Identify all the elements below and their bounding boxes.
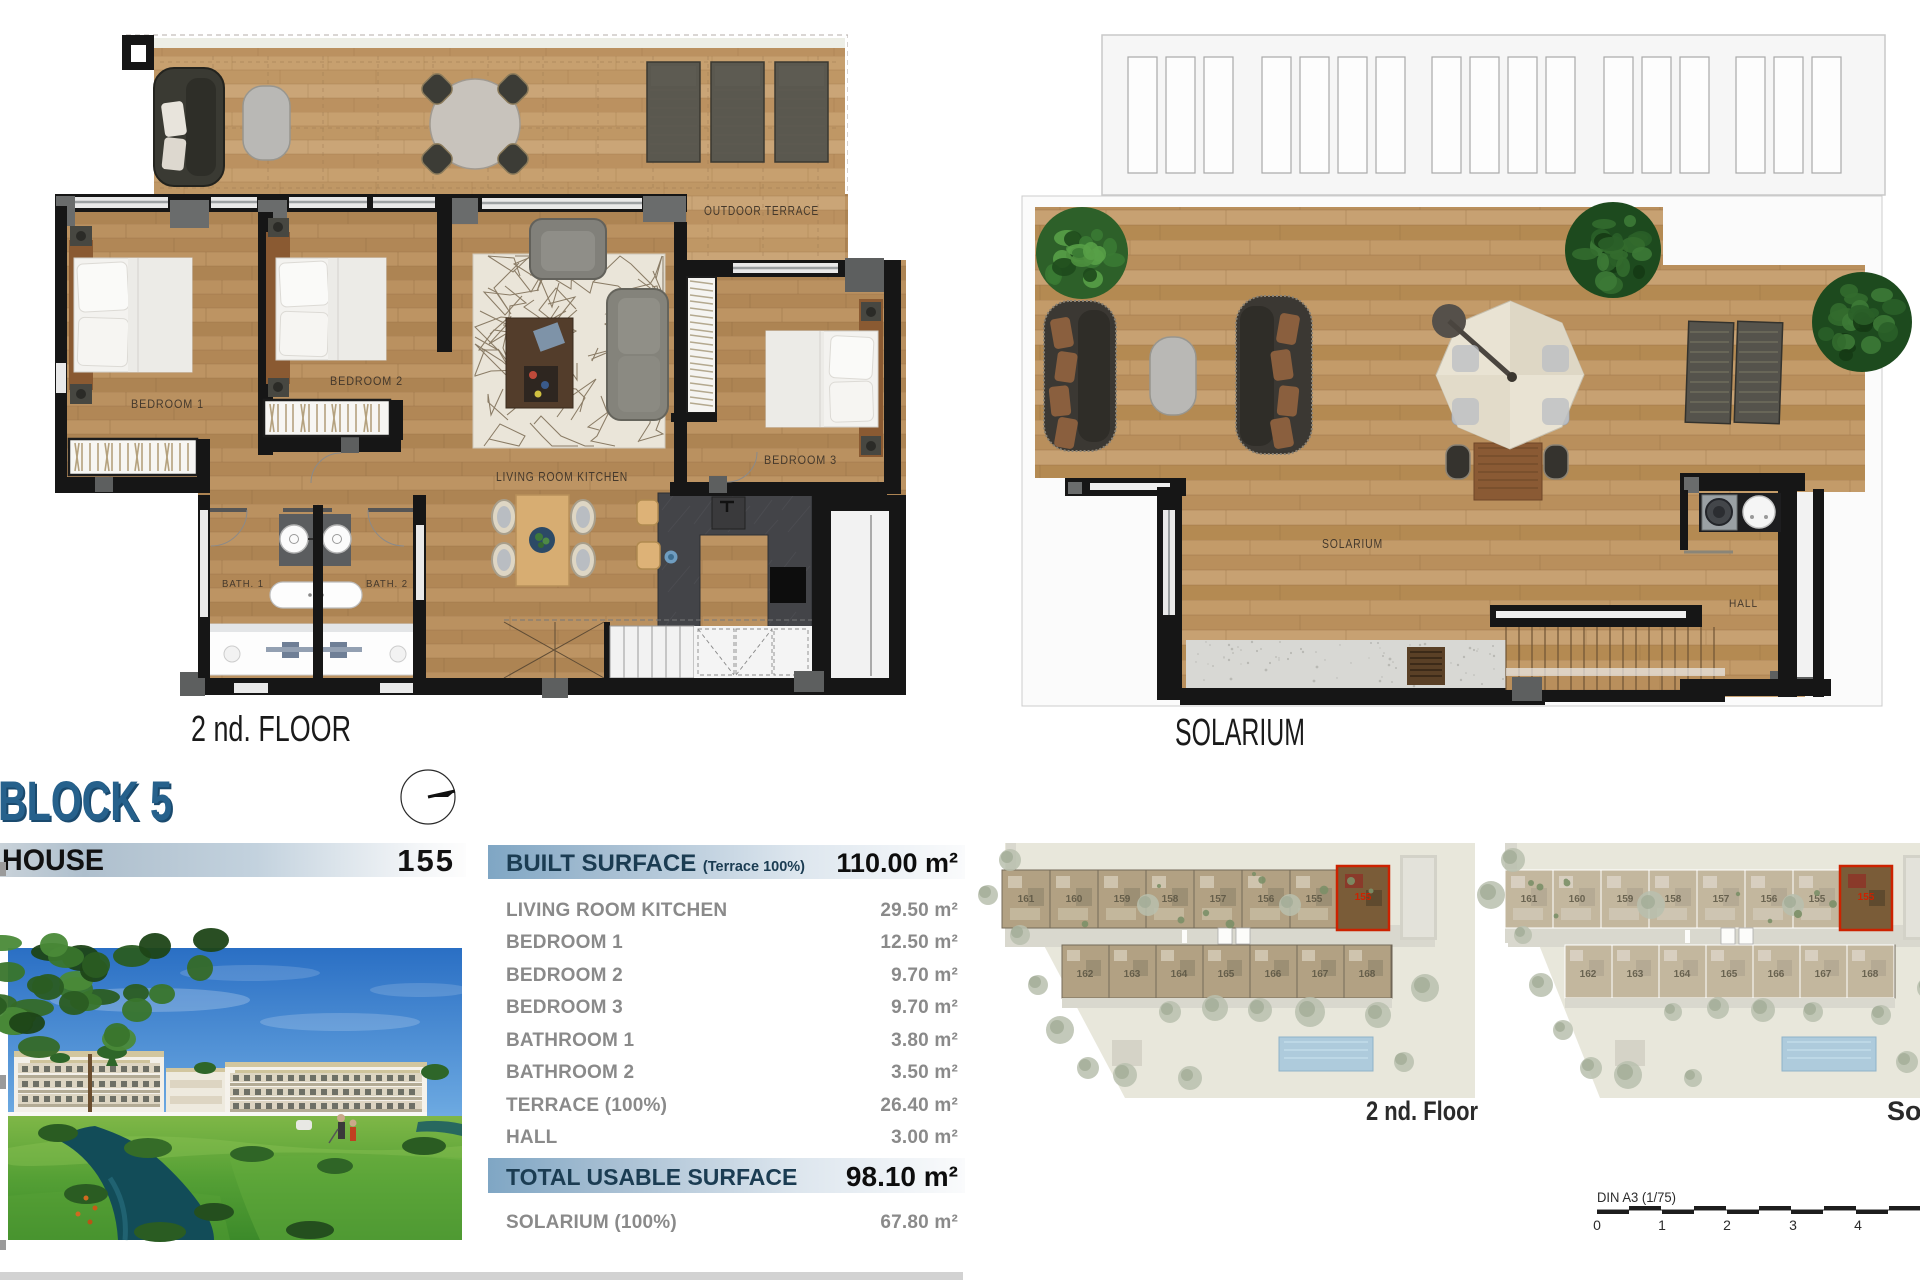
svg-text:165: 165: [1721, 969, 1738, 980]
svg-text:BEDROOM 1: BEDROOM 1: [506, 932, 623, 953]
svg-text:155: 155: [1858, 892, 1875, 903]
svg-text:163: 163: [1124, 969, 1141, 980]
svg-text:166: 166: [1768, 969, 1785, 980]
svg-text:155: 155: [397, 843, 455, 878]
svg-text:3.50 m²: 3.50 m²: [891, 1062, 958, 1083]
svg-text:162: 162: [1077, 969, 1094, 980]
svg-text:BEDROOM 2: BEDROOM 2: [506, 965, 623, 986]
svg-text:HOUSE: HOUSE: [2, 844, 104, 877]
svg-text:159: 159: [1617, 894, 1634, 905]
svg-text:LIVING ROOM KITCHEN: LIVING ROOM KITCHEN: [506, 900, 727, 921]
svg-text:LIVING ROOM KITCHEN: LIVING ROOM KITCHEN: [496, 469, 628, 484]
svg-text:Solari: Solari: [1887, 1096, 1920, 1126]
svg-text:HALL: HALL: [506, 1127, 558, 1148]
svg-text:157: 157: [1713, 894, 1730, 905]
svg-text:9.70 m²: 9.70 m²: [891, 965, 958, 986]
svg-text:3: 3: [1789, 1217, 1797, 1233]
svg-text:160: 160: [1066, 894, 1083, 905]
svg-text:0: 0: [1593, 1217, 1601, 1233]
svg-text:BATH. 1: BATH. 1: [222, 579, 264, 590]
svg-text:67.80 m²: 67.80 m²: [880, 1212, 958, 1233]
svg-text:156: 156: [1761, 894, 1778, 905]
svg-text:4: 4: [1854, 1217, 1862, 1233]
svg-text:2 nd. FLOOR: 2 nd. FLOOR: [191, 708, 351, 749]
svg-text:155: 155: [1355, 892, 1372, 903]
svg-text:12.50 m²: 12.50 m²: [880, 932, 958, 953]
svg-text:3.80 m²: 3.80 m²: [891, 1030, 958, 1051]
svg-text:164: 164: [1674, 969, 1691, 980]
svg-text:TERRACE (100%): TERRACE (100%): [506, 1095, 667, 1116]
svg-text:163: 163: [1627, 969, 1644, 980]
svg-text:BLOCK 5: BLOCK 5: [0, 769, 172, 832]
svg-text:DIN A3 (1/75): DIN A3 (1/75): [1597, 1189, 1676, 1205]
svg-text:2 nd. Floor: 2 nd. Floor: [1366, 1096, 1478, 1126]
svg-text:168: 168: [1359, 969, 1376, 980]
svg-text:98.10 m²: 98.10 m²: [846, 1161, 958, 1192]
svg-text:26.40 m²: 26.40 m²: [880, 1095, 958, 1116]
svg-text:166: 166: [1265, 969, 1282, 980]
svg-text:BEDROOM 3: BEDROOM 3: [506, 997, 623, 1018]
svg-text:BEDROOM 3: BEDROOM 3: [764, 453, 837, 467]
svg-text:3.00 m²: 3.00 m²: [891, 1127, 958, 1148]
svg-text:TOTAL USABLE SURFACE: TOTAL USABLE SURFACE: [506, 1164, 797, 1190]
svg-text:165: 165: [1218, 969, 1235, 980]
svg-text:SOLARIUM (100%): SOLARIUM (100%): [506, 1212, 677, 1233]
svg-text:164: 164: [1171, 969, 1188, 980]
svg-text:156: 156: [1258, 894, 1275, 905]
svg-text:BATHROOM 2: BATHROOM 2: [506, 1062, 634, 1083]
svg-text:HALL: HALL: [1729, 598, 1758, 610]
svg-text:BATH. 2: BATH. 2: [366, 579, 408, 590]
svg-text:167: 167: [1312, 969, 1329, 980]
svg-text:161: 161: [1521, 894, 1538, 905]
svg-text:168: 168: [1862, 969, 1879, 980]
svg-text:SOLARIUM: SOLARIUM: [1322, 536, 1383, 551]
svg-text:158: 158: [1665, 894, 1682, 905]
svg-text:159: 159: [1114, 894, 1131, 905]
svg-text:167: 167: [1815, 969, 1832, 980]
svg-text:160: 160: [1569, 894, 1586, 905]
svg-text:155: 155: [1306, 894, 1323, 905]
svg-text:158: 158: [1162, 894, 1179, 905]
svg-text:29.50 m²: 29.50 m²: [880, 900, 958, 921]
svg-text:9.70 m²: 9.70 m²: [891, 997, 958, 1018]
svg-text:SOLARIUM: SOLARIUM: [1175, 712, 1305, 754]
svg-text:110.00 m²: 110.00 m²: [836, 848, 958, 878]
svg-text:BEDROOM 2: BEDROOM 2: [330, 374, 403, 388]
svg-text:1: 1: [1658, 1217, 1666, 1233]
svg-text:BEDROOM 1: BEDROOM 1: [131, 397, 204, 411]
svg-text:2: 2: [1723, 1217, 1731, 1233]
svg-text:BATHROOM 1: BATHROOM 1: [506, 1030, 635, 1051]
svg-text:162: 162: [1580, 969, 1597, 980]
svg-text:161: 161: [1018, 894, 1035, 905]
svg-text:OUTDOOR TERRACE: OUTDOOR TERRACE: [704, 203, 819, 218]
svg-text:157: 157: [1210, 894, 1227, 905]
